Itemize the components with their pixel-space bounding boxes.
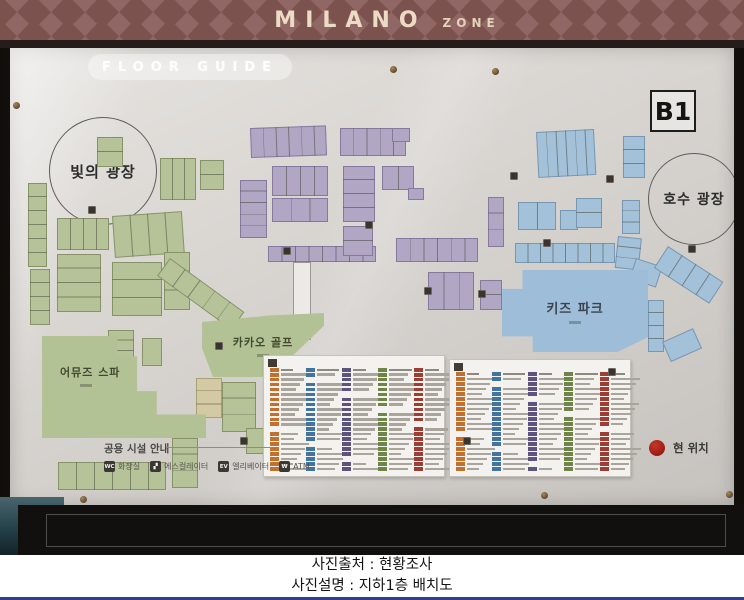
directory-entry-chip xyxy=(600,432,609,436)
directory-entry-chip xyxy=(456,407,465,411)
directory-entry-chip xyxy=(492,412,501,416)
directory-entry-text xyxy=(611,463,629,466)
elevator-label: 엘리베이터 xyxy=(232,461,269,472)
caption-description: 사진설명 : 지하1층 배치도 xyxy=(291,577,452,597)
directory-entry-text xyxy=(575,373,598,376)
directory-entry-chip xyxy=(492,392,501,396)
directory-entry-chip xyxy=(378,447,387,451)
directory-entry-chip xyxy=(306,447,315,451)
directory-entry-text xyxy=(503,468,525,471)
directory-entry-text xyxy=(539,408,562,411)
directory-entry-text xyxy=(353,428,375,431)
directory-entry-chip xyxy=(270,413,279,417)
directory-entry-text xyxy=(353,378,377,381)
directory-entry-chip xyxy=(492,452,501,456)
directory-entry-text xyxy=(425,378,450,381)
directory-entry-text xyxy=(611,433,634,436)
directory-entry-text xyxy=(575,453,591,456)
directory-entry-chip xyxy=(270,373,279,377)
facility-icon xyxy=(543,239,551,247)
directory-entry-chip xyxy=(492,402,501,406)
kids-park-area: 키즈 파크 xyxy=(502,270,648,352)
directory-entry-text xyxy=(317,438,340,441)
legend-item-elevator: EV 엘리베이터 xyxy=(218,461,269,472)
legend-divider xyxy=(166,447,272,448)
map-block xyxy=(240,180,267,238)
map-block xyxy=(272,166,328,196)
directory-entry-chip xyxy=(492,437,501,441)
directory-entry-text xyxy=(467,403,493,406)
directory-entry-text xyxy=(425,428,448,431)
facility-icon xyxy=(606,175,614,183)
directory-entry-chip xyxy=(414,462,423,466)
directory-entry-chip xyxy=(600,422,609,426)
directory-entry-chip xyxy=(564,402,573,406)
directory-entry-text xyxy=(575,428,592,431)
directory-entry-text xyxy=(503,433,515,436)
directory-entry-text xyxy=(539,373,552,376)
directory-entry-chip xyxy=(600,442,609,446)
directory-entry-text xyxy=(281,448,305,451)
directory-entry-text xyxy=(467,413,485,416)
directory-entry-chip xyxy=(306,388,315,392)
directory-entry-text xyxy=(425,413,441,416)
current-location-marker: 현 위치 xyxy=(649,440,709,456)
directory-entry-chip xyxy=(306,373,315,377)
screenshot: MILANO ZONE FLOOR GUIDE B1 빛의 광장 호수 광장 키… xyxy=(0,0,744,600)
map-block xyxy=(408,188,424,200)
directory-entry-chip xyxy=(378,418,387,422)
directory-entry-text xyxy=(281,433,298,436)
directory-entry-text xyxy=(389,393,411,396)
directory-entry-text xyxy=(281,408,299,411)
directory-entry-chip xyxy=(492,462,501,466)
directory-entry-chip xyxy=(492,457,501,461)
directory-entry-chip xyxy=(528,432,537,436)
directory-entry-chip xyxy=(528,467,537,471)
directory-entry-text xyxy=(281,413,295,416)
toilet-label: 화장실 xyxy=(118,461,140,472)
directory-entry-chip xyxy=(564,457,573,461)
directory-entry-chip xyxy=(306,452,315,456)
map-block xyxy=(28,183,47,267)
map-block xyxy=(382,166,414,190)
map-block xyxy=(160,158,196,200)
map-block xyxy=(392,128,410,142)
directory-entry-chip xyxy=(528,412,537,416)
directory-entry-text xyxy=(503,408,516,411)
directory-entry-text xyxy=(353,448,378,451)
directory-entry-chip xyxy=(528,457,537,461)
directory-entry-chip xyxy=(270,388,279,392)
directory-entry-chip xyxy=(378,427,387,431)
map-block xyxy=(343,226,373,256)
directory-entry-text xyxy=(539,383,563,386)
facility-icon xyxy=(283,247,291,255)
panel-corner-chip xyxy=(454,363,463,371)
directory-entry-text xyxy=(317,398,334,401)
directory-entry-text xyxy=(353,463,366,466)
directory-entry-text xyxy=(575,393,601,396)
directory-entry-chip xyxy=(378,437,387,441)
directory-entry-text xyxy=(425,388,442,391)
directory-entry-chip xyxy=(492,377,501,381)
directory-entry-chip xyxy=(342,373,351,377)
directory-entry-chip xyxy=(528,392,537,396)
directory-entry-text xyxy=(539,433,561,436)
directory-entry-text xyxy=(539,403,566,406)
map-block xyxy=(576,198,602,228)
facility-icon xyxy=(88,206,96,214)
directory-entry-text xyxy=(611,443,626,446)
directory-entry-text xyxy=(425,458,443,461)
directory-entry-chip xyxy=(456,457,465,461)
directory-entry-chip xyxy=(270,418,279,422)
directory-entry-chip xyxy=(306,427,315,431)
directory-entry-chip xyxy=(306,403,315,407)
directory-entry-text xyxy=(611,413,631,416)
escalator-icon: ▞ xyxy=(150,461,161,472)
directory-entry-text xyxy=(575,398,597,401)
directory-entry-text xyxy=(503,428,519,431)
directory-entry-text xyxy=(353,408,372,411)
directory-entry-chip xyxy=(564,437,573,441)
directory-entry-chip xyxy=(414,427,423,431)
directory-entry-text xyxy=(317,393,338,396)
directory-entry-text xyxy=(503,398,524,401)
directory-entry-chip xyxy=(528,372,537,376)
directory-entry-chip xyxy=(342,418,351,422)
directory-entry-text xyxy=(389,458,416,461)
directory-entry-chip xyxy=(342,398,351,402)
directory-entry-text xyxy=(353,398,380,401)
legend-item-escalator: ▞ 에스컬레이터 xyxy=(150,461,208,472)
directory-entry-chip xyxy=(528,387,537,391)
caption-block: 사진출처 : 현황조사 사진설명 : 지하1층 배치도 xyxy=(0,555,744,597)
directory-entry-text xyxy=(353,438,367,441)
directory-entry-chip xyxy=(306,437,315,441)
facility-icon xyxy=(688,245,696,253)
directory-entry-chip xyxy=(378,403,387,407)
plaza-of-light-circle: 빛의 광장 xyxy=(49,117,157,225)
caption-source: 사진출처 : 현황조사 xyxy=(312,556,433,576)
map-block xyxy=(112,262,162,316)
directory-entry-text xyxy=(281,383,300,386)
directory-entry-chip xyxy=(492,397,501,401)
banner-divider xyxy=(0,40,744,48)
directory-entry-chip xyxy=(492,467,501,471)
directory-entry-chip xyxy=(270,398,279,402)
directory-entry-text xyxy=(389,443,409,446)
map-block xyxy=(654,246,724,304)
directory-entry-text xyxy=(539,468,552,471)
banner-title: MILANO xyxy=(274,8,426,33)
directory-entry-chip xyxy=(414,393,423,397)
screw xyxy=(541,492,548,499)
legend-items: WC 화장실 ▞ 에스컬레이터 EV 엘리베이터 ₩ ATM xyxy=(104,461,310,472)
directory-entry-chip xyxy=(342,422,351,426)
directory-entry-text xyxy=(389,463,412,466)
directory-entry-text xyxy=(425,369,439,372)
directory-entry-chip xyxy=(456,387,465,391)
directory-entry-text xyxy=(389,403,403,406)
directory-entry-chip xyxy=(600,457,609,461)
directory-entry-chip xyxy=(492,417,501,421)
directory-entry-text xyxy=(281,423,306,426)
directory-entry-chip xyxy=(564,467,573,471)
directory-entry-chip xyxy=(342,403,351,407)
directory-entry-chip xyxy=(342,378,351,382)
map-block xyxy=(343,166,375,222)
directory-entry-text xyxy=(317,468,335,471)
legend-item-toilet: WC 화장실 xyxy=(104,461,140,472)
directory-entry-chip xyxy=(564,432,573,436)
directory-entry-text xyxy=(611,458,633,461)
facility-icon xyxy=(240,437,248,445)
directory-entry-chip xyxy=(564,447,573,451)
directory-entry-text xyxy=(317,388,342,391)
directory-entry-text xyxy=(317,463,339,466)
directory-entry-text xyxy=(425,393,438,396)
map-block xyxy=(272,198,328,222)
directory-entry-text xyxy=(281,403,303,406)
directory-entry-chip xyxy=(378,393,387,397)
directory-entry-chip xyxy=(342,442,351,446)
directory-entry-text xyxy=(389,398,407,401)
directory-entry-chip xyxy=(492,372,501,376)
directory-entry-chip xyxy=(414,452,423,456)
toilet-icon: WC xyxy=(104,461,115,472)
directory-entry-chip xyxy=(306,413,315,417)
directory-entry-text xyxy=(503,423,523,426)
directory-entry-chip xyxy=(270,442,279,446)
directory-entry-text xyxy=(281,388,296,391)
map-block xyxy=(662,328,702,362)
directory-entry-chip xyxy=(270,383,279,387)
directory-entry-text xyxy=(575,448,595,451)
directory-entry-text xyxy=(539,428,565,431)
directory-entry-text xyxy=(317,448,332,451)
directory-entry-text xyxy=(539,453,564,456)
facility-icon xyxy=(478,290,486,298)
banner-text-group: MILANO ZONE xyxy=(244,8,499,33)
directory-entry-chip xyxy=(528,452,537,456)
directory-entry-text xyxy=(353,423,379,426)
directory-entry-text xyxy=(281,378,304,381)
facility-icon xyxy=(424,287,432,295)
directory-entry-chip xyxy=(456,447,465,451)
directory-entry-text xyxy=(317,403,330,406)
map-block xyxy=(97,137,123,167)
directory-entry-chip xyxy=(456,382,465,386)
directory-entry-text xyxy=(425,453,447,456)
directory-entry-text xyxy=(467,408,489,411)
directory-entry-chip xyxy=(378,388,387,392)
directory-entry-text xyxy=(281,438,294,441)
kakao-golf-label: 카카오 골프 xyxy=(233,334,293,350)
directory-entry-chip xyxy=(270,403,279,407)
directory-entry-chip xyxy=(600,462,609,466)
screw xyxy=(492,68,499,75)
directory-entry-chip xyxy=(492,387,501,391)
directory-entry-chip xyxy=(270,378,279,382)
directory-entry-chip xyxy=(378,368,387,372)
directory-entry-chip xyxy=(600,402,609,406)
directory-entry-chip xyxy=(342,413,351,417)
facility-icon xyxy=(365,221,373,229)
unit-number xyxy=(80,384,92,387)
directory-entry-chip xyxy=(270,432,279,436)
map-block xyxy=(396,238,478,262)
directory-entry-text xyxy=(353,413,368,416)
directory-entry-chip xyxy=(564,392,573,396)
directory-entry-text xyxy=(611,383,636,386)
directory-entry-text xyxy=(389,373,408,376)
directory-entry-chip xyxy=(564,387,573,391)
directory-entry-text xyxy=(575,423,596,426)
directory-entry-chip xyxy=(564,377,573,381)
directory-entry-text xyxy=(353,383,373,386)
directory-entry-text xyxy=(425,383,446,386)
directory-entry-text xyxy=(353,373,381,376)
directory-entry-chip xyxy=(456,397,465,401)
screw xyxy=(13,102,20,109)
directory-entry-chip xyxy=(456,392,465,396)
directory-entry-text xyxy=(317,373,335,376)
map-block xyxy=(222,382,256,432)
banner-subtitle: ZONE xyxy=(443,16,500,30)
directory-entry-text xyxy=(353,369,366,372)
directory-entry-chip xyxy=(414,368,423,372)
map-block xyxy=(622,200,640,234)
directory-entry-chip xyxy=(270,422,279,426)
directory-entry-chip xyxy=(306,408,315,412)
map-block xyxy=(200,160,224,190)
directory-entry-text xyxy=(281,369,293,372)
directory-entry-text xyxy=(611,398,624,401)
directory-entry-text xyxy=(281,458,297,461)
lower-black-panel xyxy=(18,505,744,555)
floor-badge-label: B1 xyxy=(655,97,691,126)
current-location-label: 현 위치 xyxy=(673,440,709,456)
directory-entry-text xyxy=(389,378,404,381)
directory-entry-chip xyxy=(492,422,501,426)
directory-entry-chip xyxy=(342,427,351,431)
directory-entry-text xyxy=(503,378,521,381)
escalator-label: 에스컬레이터 xyxy=(164,461,208,472)
directory-entry-chip xyxy=(492,442,501,446)
panel-corner-chip xyxy=(268,359,277,367)
directory-entry-chip xyxy=(414,398,423,402)
directory-entry-text xyxy=(467,463,483,466)
directory-entry-chip xyxy=(564,422,573,426)
directory-entry-text xyxy=(467,383,490,386)
directory-entry-chip xyxy=(414,408,423,412)
facility-icon xyxy=(463,437,471,445)
directory-entry-text xyxy=(389,418,410,421)
directory-entry-chip xyxy=(600,447,609,451)
directory-entry-text xyxy=(317,423,333,426)
directory-entry-text xyxy=(503,373,525,376)
directory-entry-text xyxy=(353,468,381,471)
directory-entry-text xyxy=(425,418,437,421)
directory-entry-text xyxy=(539,388,559,391)
atm-label: ATM xyxy=(293,462,310,471)
directory-entry-chip xyxy=(270,368,279,372)
map-block xyxy=(488,197,504,247)
directory-entry-text xyxy=(539,418,554,421)
directory-entry-chip xyxy=(342,447,351,451)
directory-entry-text xyxy=(503,413,531,416)
directory-entry-chip xyxy=(270,393,279,397)
directory-entry-chip xyxy=(492,432,501,436)
photo-background: MILANO ZONE FLOOR GUIDE B1 빛의 광장 호수 광장 키… xyxy=(0,0,744,555)
directory-entry-text xyxy=(539,413,558,416)
directory-entry-text xyxy=(539,393,555,396)
directory-entry-chip xyxy=(600,437,609,441)
map-block xyxy=(142,338,162,366)
directory-entry-chip xyxy=(600,397,609,401)
directory-entry-chip xyxy=(600,377,609,381)
kids-park-label: 키즈 파크 xyxy=(546,298,603,317)
directory-entry-chip xyxy=(528,427,537,431)
directory-entry-chip xyxy=(564,452,573,456)
map-block xyxy=(57,218,109,250)
directory-entry-text xyxy=(389,453,401,456)
directory-entry-chip xyxy=(414,447,423,451)
directory-entry-chip xyxy=(600,467,609,471)
map-block xyxy=(428,272,474,310)
directory-entry-text xyxy=(503,443,526,446)
directory-entry-chip xyxy=(378,413,387,417)
directory-entry-text xyxy=(353,403,376,406)
floor-guide-board: FLOOR GUIDE B1 빛의 광장 호수 광장 키즈 파크 카카오 골프 xyxy=(10,48,734,505)
directory-entry-chip xyxy=(564,442,573,446)
directory-entry-text xyxy=(317,408,345,411)
directory-entry-text xyxy=(353,388,369,391)
directory-entry-text xyxy=(467,373,479,376)
directory-entry-text xyxy=(575,378,594,381)
directory-entry-text xyxy=(467,428,492,431)
directory-entry-text xyxy=(425,448,451,451)
directory-entry-chip xyxy=(564,397,573,401)
directory-entry-chip xyxy=(456,412,465,416)
map-block xyxy=(518,202,556,230)
directory-entry-chip xyxy=(528,402,537,406)
directory-entry-text xyxy=(281,453,301,456)
directory-entry-chip xyxy=(306,432,315,436)
directory-entry-text xyxy=(611,453,637,456)
directory-entry-chip xyxy=(342,383,351,387)
lake-plaza-label: 호수 광장 xyxy=(663,189,724,209)
directory-entry-text xyxy=(467,448,495,451)
directory-entry-text xyxy=(539,378,567,381)
legend-item-atm: ₩ ATM xyxy=(279,461,310,472)
directory-entry-text xyxy=(281,373,308,376)
directory-entry-chip xyxy=(342,408,351,412)
directory-entry-text xyxy=(539,438,557,441)
directory-entry-text xyxy=(467,388,486,391)
directory-entry-chip xyxy=(600,382,609,386)
directory-panel-right xyxy=(449,359,631,477)
directory-entry-chip xyxy=(456,427,465,431)
directory-entry-text xyxy=(317,433,344,436)
atm-icon: ₩ xyxy=(279,461,290,472)
directory-entry-chip xyxy=(270,437,279,441)
directory-entry-text xyxy=(503,393,528,396)
directory-entry-chip xyxy=(342,437,351,441)
directory-entry-chip xyxy=(306,393,315,397)
